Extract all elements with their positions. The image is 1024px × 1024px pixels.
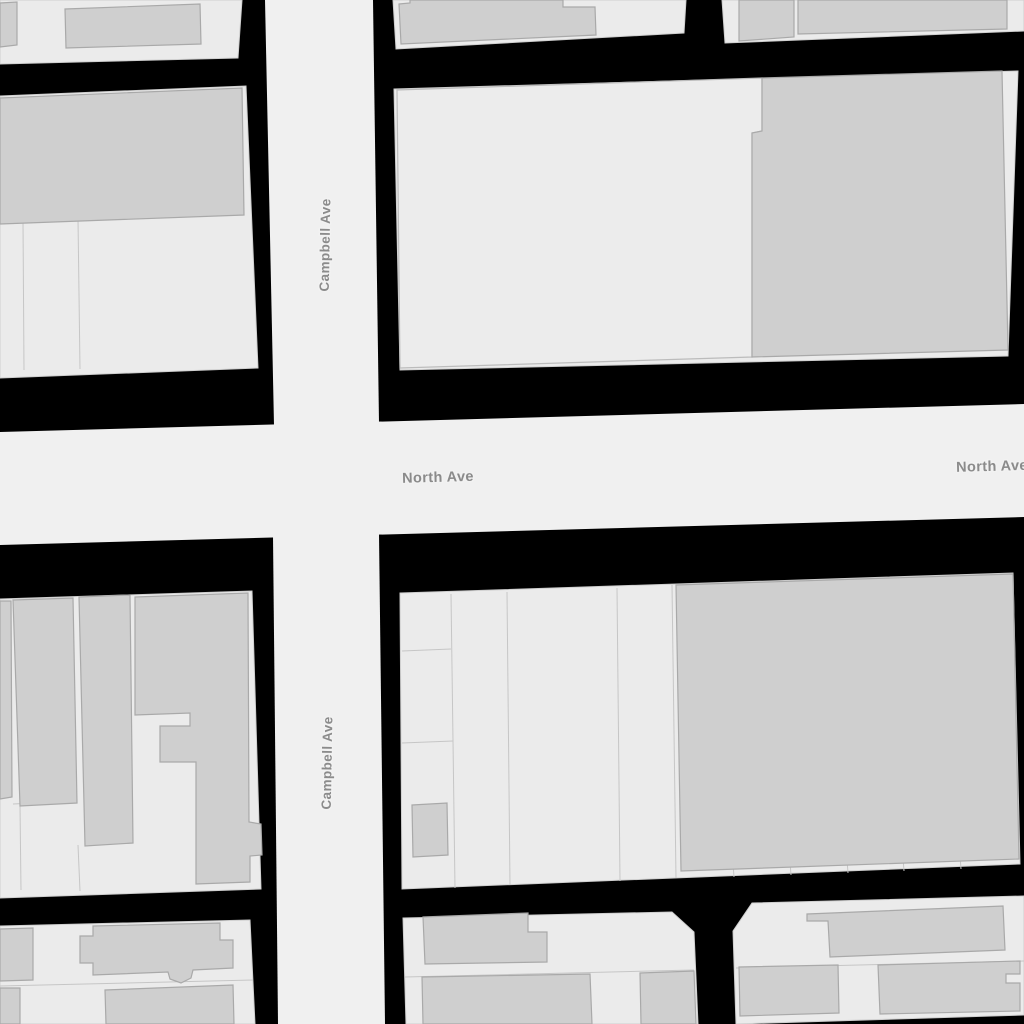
building-footprint-flag-shaped	[807, 906, 1005, 957]
building-footprint-large-mid-right	[752, 71, 1008, 357]
building-footprint-light-large	[397, 78, 762, 368]
street-label-campbell-ave-top: Campbell Ave	[317, 198, 334, 291]
building-footprint	[739, 965, 839, 1016]
building-footprint	[79, 595, 133, 846]
street-label-north-ave-center: North Ave	[402, 469, 474, 487]
building-footprint	[0, 928, 33, 981]
building-footprint-stepped	[423, 913, 547, 964]
building-footprint-notched-right	[878, 961, 1020, 1014]
building-footprint	[422, 974, 592, 1024]
building-footprint	[412, 803, 448, 857]
building-footprint	[0, 88, 244, 224]
building-footprint	[739, 0, 794, 41]
building-footprint	[0, 2, 17, 47]
map-canvas[interactable]: Campbell Ave Campbell Ave North Ave Nort…	[0, 0, 1024, 1024]
light-buildings-layer	[397, 78, 762, 368]
street-label-campbell-ave-bottom: Campbell Ave	[319, 716, 336, 809]
building-footprint-large-lower-right	[676, 574, 1019, 871]
building-footprint	[640, 971, 696, 1024]
building-footprint	[13, 598, 77, 806]
building-footprint	[65, 4, 201, 48]
building-footprint	[0, 988, 20, 1024]
map-svg: Campbell Ave Campbell Ave North Ave Nort…	[0, 0, 1024, 1024]
street-label-north-ave-right: North Ave	[956, 458, 1024, 476]
building-footprint	[798, 0, 1007, 34]
building-footprint	[0, 601, 12, 799]
building-footprint	[105, 985, 234, 1024]
